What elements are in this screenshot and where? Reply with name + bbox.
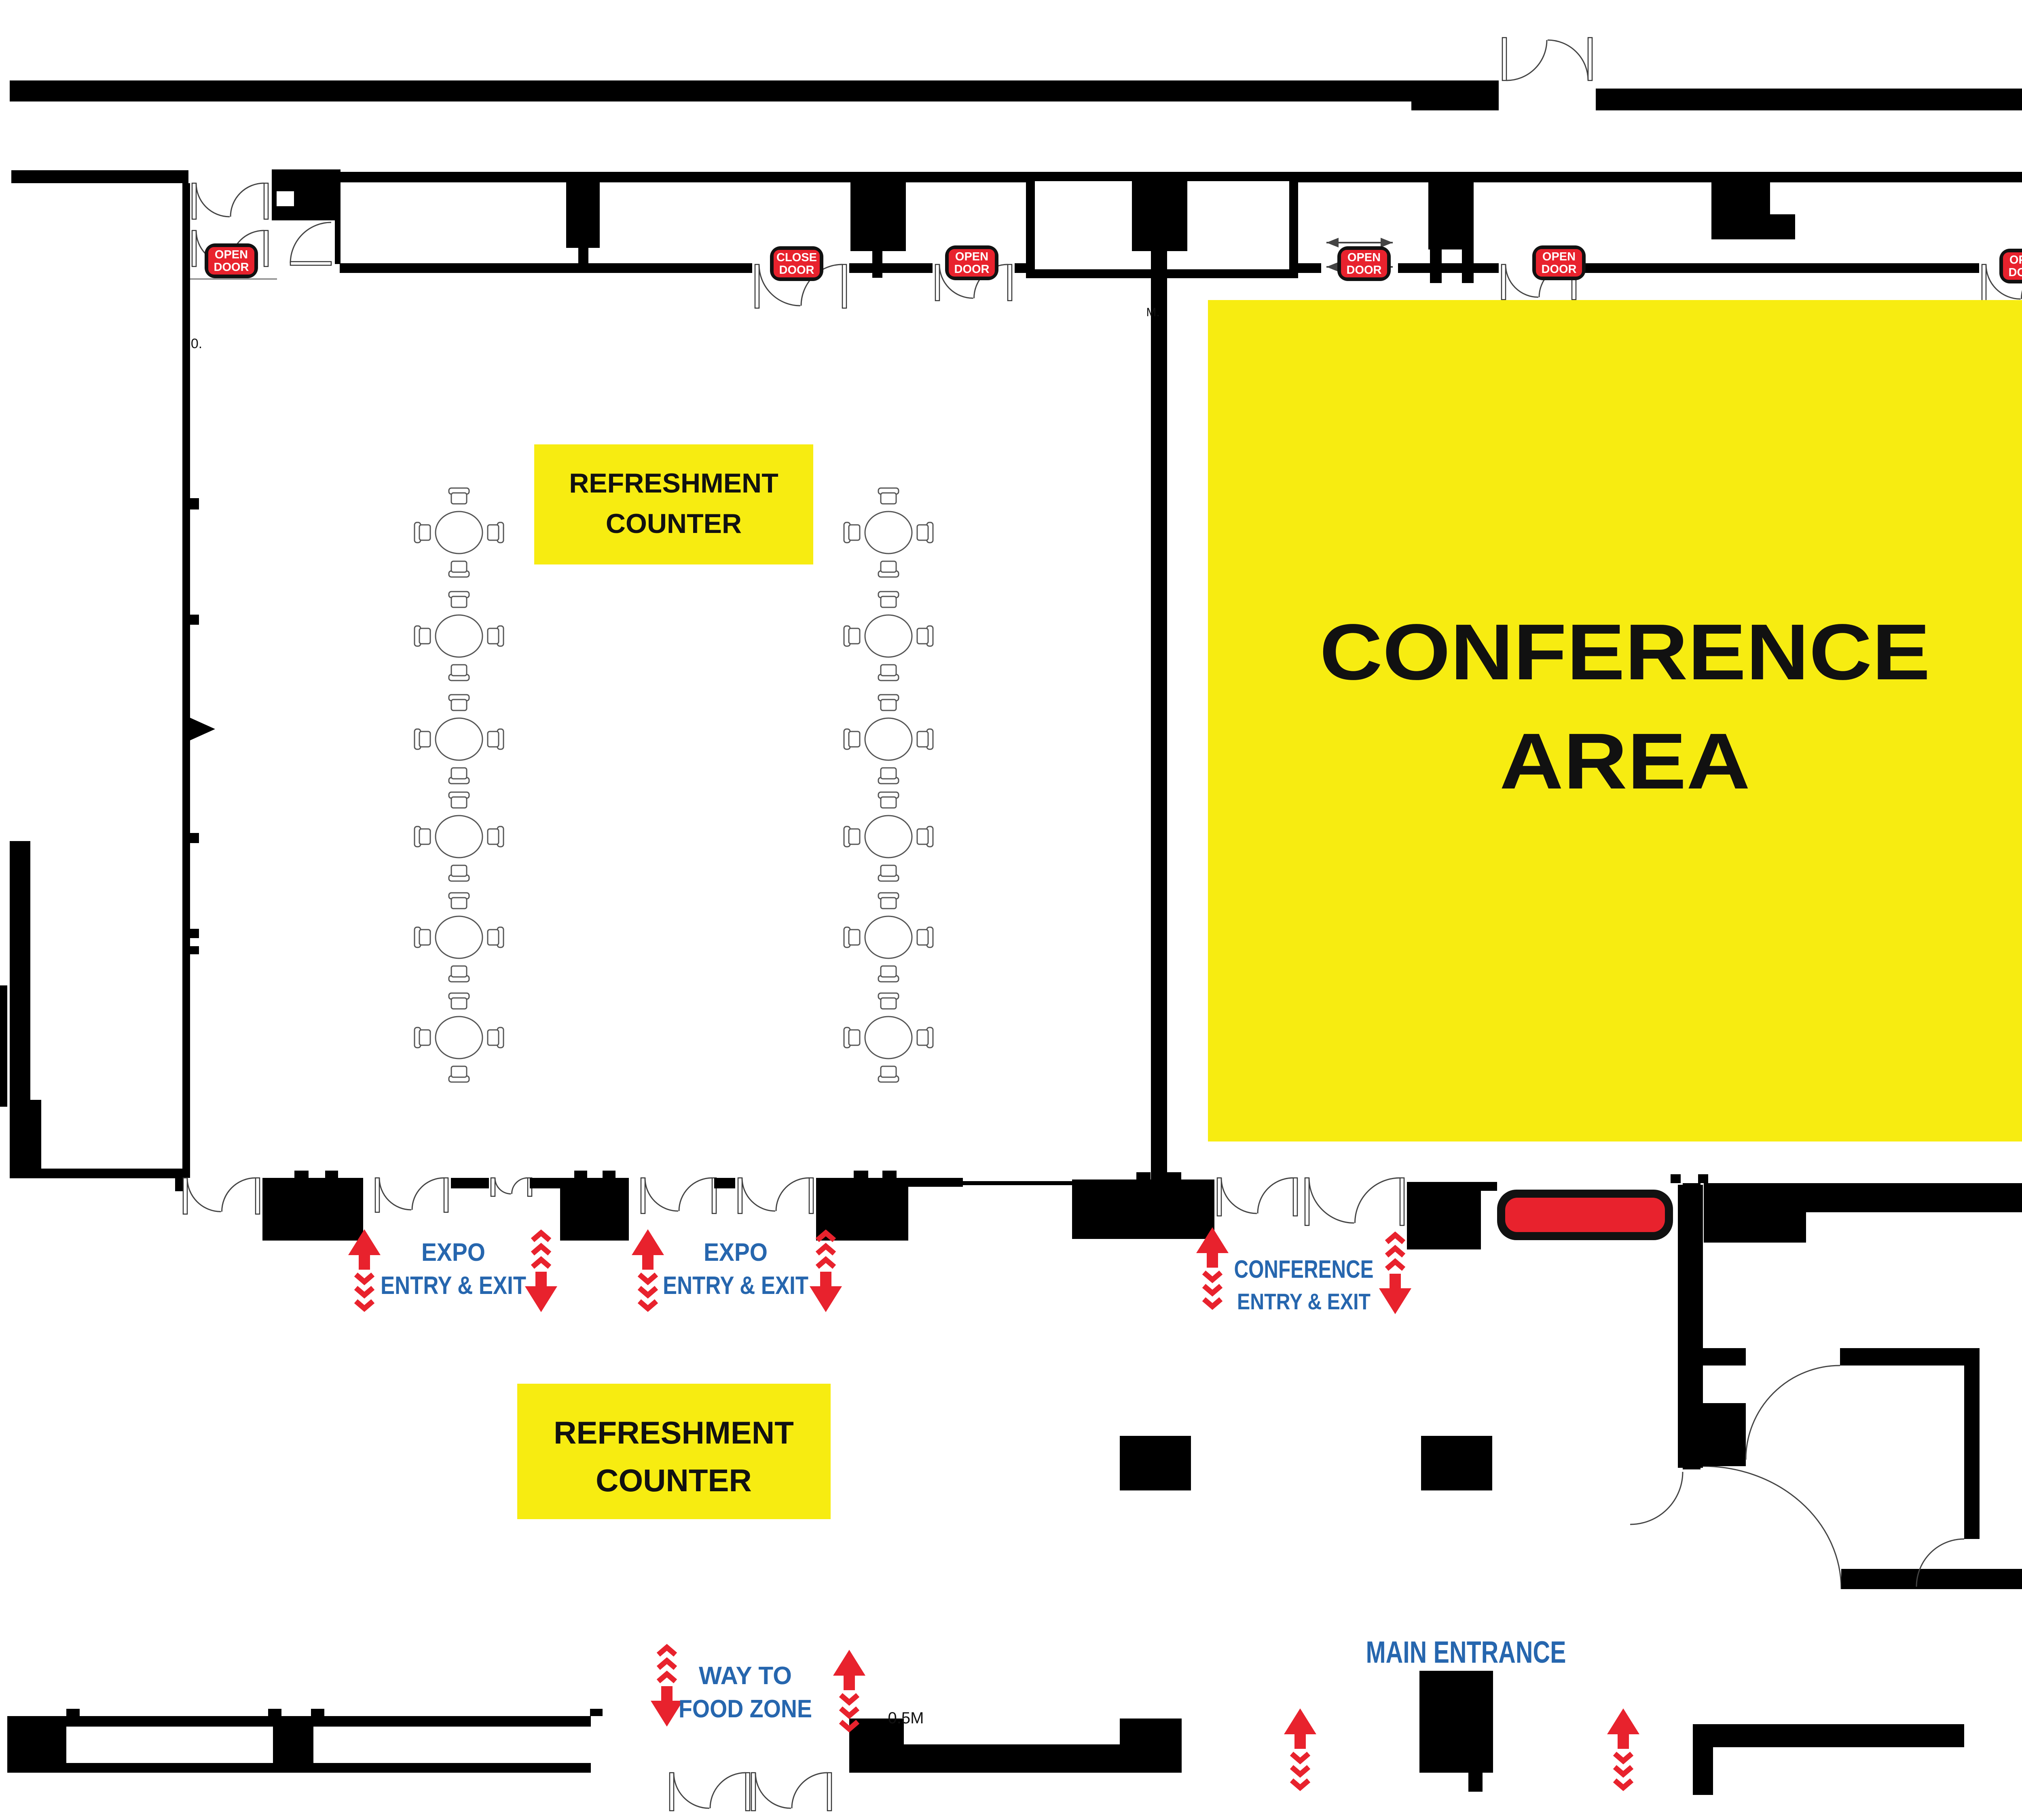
svg-text:REFRESHMENT: REFRESHMENT	[554, 1415, 794, 1450]
svg-text:WAY TO: WAY TO	[699, 1662, 792, 1690]
svg-text:COUNTER: COUNTER	[606, 508, 742, 539]
svg-text:MAIN ENTRANCE: MAIN ENTRANCE	[1366, 1635, 1566, 1670]
svg-text:EXPO: EXPO	[704, 1239, 768, 1266]
svg-text:OPEN: OPEN	[2009, 254, 2022, 266]
svg-text:ENTRY & EXIT: ENTRY & EXIT	[1237, 1289, 1371, 1314]
svg-text:DOOR: DOOR	[1542, 263, 1577, 276]
svg-text:0.5M: 0.5M	[888, 1709, 924, 1727]
svg-text:OPEN: OPEN	[955, 250, 988, 263]
svg-text:DOOR: DOOR	[1347, 264, 1382, 277]
svg-text:DOOR: DOOR	[2009, 266, 2022, 279]
svg-text:CONFERENCE: CONFERENCE	[1320, 608, 1930, 696]
svg-text:OPEN: OPEN	[1542, 250, 1576, 263]
svg-text:CONFERENCE: CONFERENCE	[1234, 1256, 1374, 1283]
svg-text:REFRESHMENT: REFRESHMENT	[569, 468, 778, 499]
svg-text:COUNTER: COUNTER	[596, 1463, 752, 1498]
svg-text:ENTRY & EXIT: ENTRY & EXIT	[381, 1272, 526, 1300]
svg-text:DOOR: DOOR	[214, 261, 249, 274]
svg-text:OPEN: OPEN	[1347, 251, 1381, 264]
svg-text:DOOR: DOOR	[779, 264, 814, 277]
svg-text:EXPO: EXPO	[421, 1239, 485, 1266]
svg-text:ENTRY & EXIT: ENTRY & EXIT	[663, 1272, 808, 1300]
svg-text:CLOSE: CLOSE	[776, 251, 817, 264]
svg-text:FOOD ZONE: FOOD ZONE	[679, 1695, 812, 1723]
svg-text:0.: 0.	[191, 336, 202, 351]
svg-text:DOOR: DOOR	[954, 263, 990, 276]
svg-text:AREA: AREA	[1500, 717, 1750, 805]
svg-text:OPEN: OPEN	[215, 248, 248, 261]
svg-text:M.: M.	[1146, 306, 1159, 319]
